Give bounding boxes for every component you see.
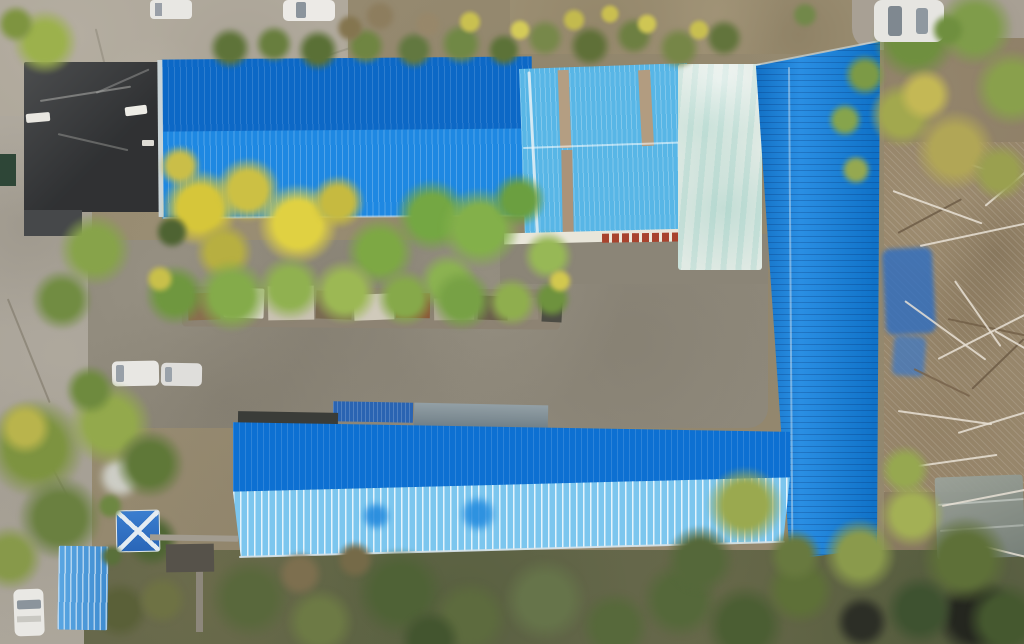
tree-yellow-green	[879, 444, 931, 496]
dark-bush	[154, 214, 190, 250]
yellow-flower-bush	[561, 7, 587, 33]
car-window	[888, 6, 902, 36]
scrub-clump	[335, 540, 375, 580]
car-window	[296, 2, 306, 18]
dry-scrub	[413, 9, 443, 39]
tree-dark	[664, 524, 736, 596]
dark-pond	[834, 594, 890, 644]
yard-tree	[375, 268, 435, 328]
middle-building-skyblue-roof	[519, 63, 693, 239]
tree-green	[30, 268, 94, 332]
north-building-dark-slope	[162, 56, 533, 133]
roof-walkboard-stripe	[561, 150, 573, 234]
tree-green	[114, 428, 186, 500]
weathered-white-roof	[678, 64, 762, 270]
skylight	[142, 140, 154, 146]
car-windshield	[17, 600, 41, 610]
aerial-photograph	[0, 0, 1024, 644]
yellow-flower-bush	[599, 3, 621, 25]
roof-overhang-sprig	[827, 102, 863, 138]
hedge-bush	[208, 26, 252, 70]
tar-flat-roof	[24, 62, 164, 212]
yellow-flower-bush	[635, 12, 659, 36]
yellow-flower-bush	[457, 9, 483, 35]
white-car-parked	[13, 588, 45, 636]
hedge-bush	[254, 24, 294, 64]
tree-green	[64, 364, 116, 416]
scrub-clump	[136, 574, 188, 626]
roof-water-stain	[361, 501, 391, 531]
yellow-accent-tree	[145, 264, 175, 294]
kiosk-sprig	[100, 544, 124, 568]
blue-pavilion-roof	[116, 510, 161, 553]
tree-dark	[884, 574, 956, 644]
blue-tarp	[882, 247, 936, 335]
yard-tree	[311, 258, 379, 326]
tree-green	[491, 172, 547, 228]
pavilion-sprig	[96, 492, 124, 520]
white-car-top	[283, 0, 335, 21]
car-window	[916, 8, 928, 34]
yard-tree	[486, 276, 538, 328]
tree-yellow	[897, 67, 953, 123]
path-sprig	[791, 1, 819, 29]
car-roof-stripe	[17, 616, 41, 623]
dry-scrub	[363, 0, 397, 33]
roof-overhang-sprig	[843, 53, 887, 97]
dark-block	[166, 544, 214, 573]
van-window	[155, 3, 162, 16]
path-bush	[704, 18, 744, 58]
yellow-flower-bush	[687, 18, 711, 42]
van-windshield	[116, 365, 124, 382]
ginkgo-yellow-tree	[158, 144, 202, 188]
yellow-flower-bush	[508, 18, 532, 42]
tree-yellow-green	[970, 142, 1024, 202]
roof-overhang-sprig	[840, 154, 872, 186]
scrub-clump	[501, 556, 589, 644]
yellow-accent-tree	[547, 268, 573, 294]
dry-scrub	[335, 13, 365, 43]
brick-wall-marks	[602, 232, 690, 243]
car-overhang-sprig	[930, 12, 966, 48]
hedge-bush	[296, 28, 340, 72]
small-dark-blue-roof	[333, 401, 413, 422]
tree-green	[767, 528, 823, 584]
yard-tree	[430, 268, 494, 332]
scrub-clump	[276, 550, 324, 598]
dark-shed-left-edge	[0, 154, 16, 186]
car-windshield	[165, 367, 172, 382]
roof-water-stain	[459, 495, 497, 533]
ginkgo-yellow-tree	[310, 174, 366, 230]
path-bush	[525, 18, 565, 58]
